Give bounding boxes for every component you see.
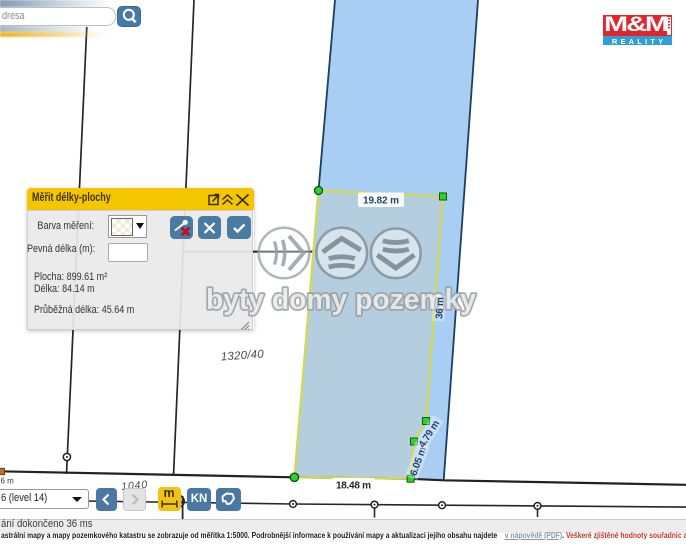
svg-text:36 m: 36 m xyxy=(434,297,446,320)
